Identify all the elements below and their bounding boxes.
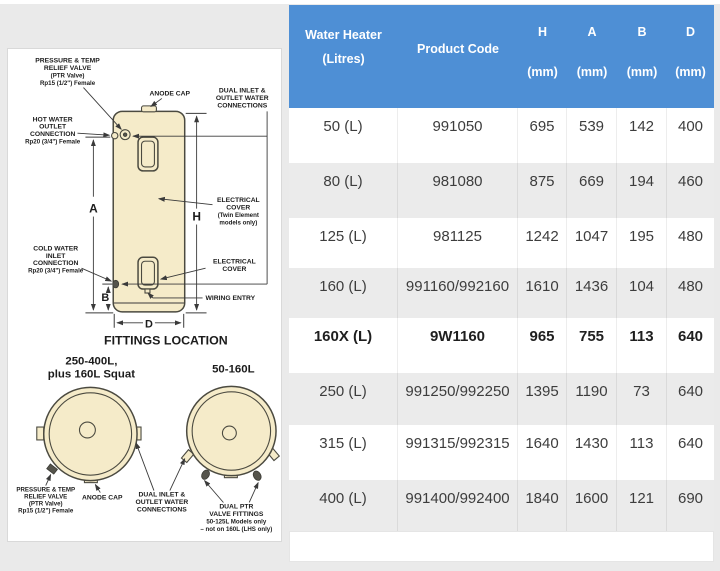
svg-text:Rp15 (1/2") Female: Rp15 (1/2") Female (40, 80, 96, 87)
svg-text:RELIEF VALVE: RELIEF VALVE (44, 65, 92, 72)
right-circle-title: 50-160L (212, 363, 255, 375)
cell-code: 981125 (398, 218, 518, 268)
diagram-panel: A H B D PRESSURE & TEMP RELIEF VALVE (7, 48, 282, 542)
cell-b: 73 (617, 373, 667, 425)
cell-code: 9W1160 (398, 318, 518, 373)
svg-text:INLET: INLET (46, 253, 66, 260)
header-d-unit: (mm) (667, 65, 714, 79)
header-dim-h: H (mm) (518, 5, 567, 108)
cell-b: 195 (617, 218, 667, 268)
header-h-unit: (mm) (518, 65, 567, 79)
header-a-letter: A (567, 25, 617, 39)
center-fitting (79, 422, 95, 438)
cell-a: 1430 (567, 425, 617, 480)
svg-text:Rp20 (3/4") Female: Rp20 (3/4") Female (25, 139, 81, 146)
cell-a: 1190 (567, 373, 617, 425)
cell-b: 121 (617, 480, 667, 531)
fittings-location-title: FITTINGS LOCATION (104, 334, 228, 348)
svg-text:PRESSURE & TEMP: PRESSURE & TEMP (16, 487, 75, 494)
svg-text:HOT WATER: HOT WATER (33, 116, 73, 123)
header-b-letter: B (617, 25, 667, 39)
header-d-letter: D (667, 25, 714, 39)
datasheet-page: A H B D PRESSURE & TEMP RELIEF VALVE (0, 0, 720, 571)
left-tab (37, 427, 44, 440)
electrical-cover-twin-label: ELECTRICAL COVER (Twin Element models on… (217, 197, 260, 226)
svg-text:(PTR Valve): (PTR Valve) (29, 500, 63, 507)
cell-h: 1395 (518, 373, 567, 425)
cell-litres: 80 (L) (289, 163, 398, 218)
svg-text:CONNECTION: CONNECTION (33, 260, 79, 267)
dim-h-label: H (192, 210, 201, 224)
cell-litres: 125 (L) (289, 218, 398, 268)
left-circle-title-1: 250-400L, (65, 355, 117, 367)
header-a-unit: (mm) (567, 65, 617, 79)
svg-text:DUAL PTR: DUAL PTR (219, 503, 253, 510)
svg-text:Rp20 (3/4") Female: Rp20 (3/4") Female (28, 268, 84, 275)
upper-cover-inner (142, 141, 155, 167)
cell-b: 104 (617, 268, 667, 318)
svg-text:PRESSURE & TEMP: PRESSURE & TEMP (35, 58, 100, 65)
cell-code: 991400/992400 (398, 480, 518, 531)
cell-d: 480 (667, 218, 714, 268)
table-row: 400 (L)991400/99240018401600121690 (289, 480, 714, 531)
header-water-heater: Water Heater (Litres) (289, 5, 398, 108)
cell-code: 981080 (398, 163, 518, 218)
cell-a: 1047 (567, 218, 617, 268)
cell-d: 690 (667, 480, 714, 531)
cell-h: 1242 (518, 218, 567, 268)
table-header: Water Heater (Litres) Product Code H (mm… (289, 5, 714, 108)
cell-a: 1600 (567, 480, 617, 531)
cell-litres: 160 (L) (289, 268, 398, 318)
svg-text:Rp15 (1/2") Female: Rp15 (1/2") Female (18, 507, 74, 514)
svg-text:CONNECTIONS: CONNECTIONS (217, 102, 267, 109)
table-row: 125 (L)98112512421047195480 (289, 218, 714, 268)
cell-b: 142 (617, 108, 667, 163)
cell-b: 113 (617, 425, 667, 480)
dim-a-label: A (89, 202, 98, 216)
hot-water-outlet-label: HOT WATER OUTLET CONNECTION Rp20 (3/4") … (25, 116, 81, 145)
svg-text:RELIEF VALVE: RELIEF VALVE (24, 494, 67, 501)
svg-text:CONNECTIONS: CONNECTIONS (137, 506, 187, 513)
cell-code: 991250/992250 (398, 373, 518, 425)
anode-cap-label: ANODE CAP (150, 90, 191, 97)
svg-text:COLD WATER: COLD WATER (33, 245, 78, 252)
header-dim-d: D (mm) (667, 5, 714, 108)
ptr-fitting-right (252, 470, 263, 482)
cell-h: 695 (518, 108, 567, 163)
cell-b: 194 (617, 163, 667, 218)
cell-litres: 400 (L) (289, 480, 398, 531)
svg-text:OUTLET WATER: OUTLET WATER (135, 499, 188, 506)
ptr-valve-label: PRESSURE & TEMP RELIEF VALVE (PTR Valve)… (35, 58, 100, 87)
wiring-entry-fitting (145, 289, 150, 293)
cell-a: 1436 (567, 268, 617, 318)
spec-table: Water Heater (Litres) Product Code H (mm… (289, 5, 714, 562)
table-row: 315 (L)991315/99231516401430113640 (289, 425, 714, 480)
bottom-dual-label: DUAL INLET & OUTLET WATER CONNECTIONS (135, 492, 188, 514)
svg-text:COVER: COVER (222, 266, 246, 273)
cell-h: 965 (518, 318, 567, 373)
header-product-code: Product Code (398, 5, 518, 108)
wiring-entry-label: WIRING ENTRY (206, 295, 256, 302)
cell-h: 875 (518, 163, 567, 218)
dual-ptr-label: DUAL PTR VALVE FITTINGS 50-125L Models o… (200, 503, 272, 532)
cold-inlet-fitting (113, 280, 119, 288)
lower-cover-inner (142, 261, 155, 285)
svg-text:(PTR Valve): (PTR Valve) (51, 73, 85, 80)
table-row: 50 (L)991050695539142400 (289, 108, 714, 163)
svg-text:ELECTRICAL: ELECTRICAL (213, 259, 256, 266)
dim-b-label: B (101, 292, 109, 304)
table-row: 160X (L)9W1160965755113640 (289, 318, 714, 373)
cell-d: 480 (667, 268, 714, 318)
cell-a: 669 (567, 163, 617, 218)
hot-outlet-fitting (112, 132, 118, 138)
cell-litres: 50 (L) (289, 108, 398, 163)
header-water-heater-line2: (Litres) (289, 52, 398, 66)
dual-inlet-outlet-label-top: DUAL INLET & OUTLET WATER CONNECTIONS (216, 87, 269, 109)
svg-text:DUAL INLET &: DUAL INLET & (219, 87, 266, 94)
center-fitting (222, 426, 236, 440)
cell-h: 1610 (518, 268, 567, 318)
table-row: 80 (L)981080875669194460 (289, 163, 714, 218)
header-dim-a: A (mm) (567, 5, 617, 108)
header-water-heater-line1: Water Heater (289, 28, 398, 42)
top-strip (0, 0, 720, 4)
cell-h: 1840 (518, 480, 567, 531)
svg-text:– not on 160L (LHS only): – not on 160L (LHS only) (200, 526, 272, 533)
svg-text:VALVE FITTINGS: VALVE FITTINGS (209, 511, 264, 518)
svg-text:models only): models only) (219, 220, 257, 227)
svg-text:50-125L Models only: 50-125L Models only (206, 518, 267, 525)
cell-code: 991315/992315 (398, 425, 518, 480)
cell-a: 539 (567, 108, 617, 163)
cell-d: 460 (667, 163, 714, 218)
cell-d: 400 (667, 108, 714, 163)
cold-water-inlet-label: COLD WATER INLET CONNECTION Rp20 (3/4") … (28, 245, 84, 274)
svg-text:(Twin Element: (Twin Element (218, 212, 259, 219)
left-circle-title-2: plus 160L Squat (48, 368, 135, 380)
header-b-unit: (mm) (617, 65, 667, 79)
electrical-cover-label: ELECTRICAL COVER (213, 259, 256, 273)
svg-text:ELECTRICAL: ELECTRICAL (217, 197, 260, 204)
ptr-valve-dot (123, 133, 127, 137)
table-row: 250 (L)991250/9922501395119073640 (289, 373, 714, 425)
cell-b: 113 (617, 318, 667, 373)
bottom-anode-label: ANODE CAP (82, 495, 123, 502)
cell-d: 640 (667, 425, 714, 480)
dim-d-label: D (145, 319, 153, 331)
svg-text:CONNECTION: CONNECTION (30, 131, 76, 138)
top-view-50-160 (181, 386, 279, 481)
tank-side-view (112, 106, 185, 312)
cell-d: 640 (667, 373, 714, 425)
cell-litres: 315 (L) (289, 425, 398, 480)
top-view-250-400 (37, 387, 141, 482)
water-heater-diagram: A H B D PRESSURE & TEMP RELIEF VALVE (8, 49, 281, 541)
empty-row (289, 531, 714, 562)
header-h-letter: H (518, 25, 567, 39)
cell-code: 991050 (398, 108, 518, 163)
svg-text:OUTLET WATER: OUTLET WATER (216, 95, 269, 102)
svg-text:OUTLET: OUTLET (39, 124, 67, 131)
cell-litres: 160X (L) (289, 318, 398, 373)
header-product-code-text: Product Code (398, 42, 518, 56)
cell-litres: 250 (L) (289, 373, 398, 425)
bottom-ptr-label: PRESSURE & TEMP RELIEF VALVE (PTR Valve)… (16, 487, 75, 515)
svg-text:COVER: COVER (226, 205, 250, 212)
header-dim-b: B (mm) (617, 5, 667, 108)
table-row: 160 (L)991160/99216016101436104480 (289, 268, 714, 318)
cell-d: 640 (667, 318, 714, 373)
fittings-location-section: FITTINGS LOCATION 250-400L, plus 160L Sq… (16, 334, 279, 533)
table-body: 50 (L)99105069553914240080 (L)9810808756… (289, 108, 714, 531)
cell-h: 1640 (518, 425, 567, 480)
cell-a: 755 (567, 318, 617, 373)
cell-code: 991160/992160 (398, 268, 518, 318)
anode-cap-fitting (142, 106, 157, 112)
svg-text:DUAL INLET &: DUAL INLET & (138, 492, 185, 499)
